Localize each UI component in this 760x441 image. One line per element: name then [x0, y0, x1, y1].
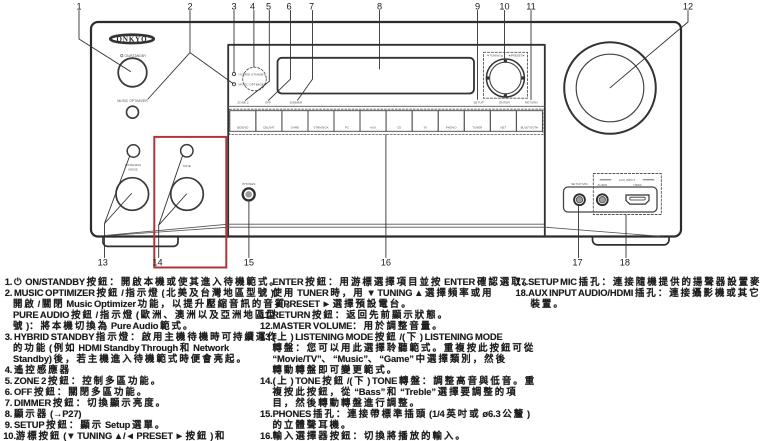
svg-text:SETUP MIC: SETUP MIC [571, 182, 589, 186]
svg-text:HDMI: HDMI [634, 183, 642, 187]
svg-text:11: 11 [526, 1, 536, 11]
svg-text:TUNER: TUNER [472, 126, 482, 130]
svg-text:MUSIC OPTIMIZER: MUSIC OPTIMIZER [117, 99, 148, 103]
svg-text:PC: PC [345, 126, 349, 130]
svg-text:2: 2 [187, 1, 192, 11]
svg-text:BD/DVD: BD/DVD [237, 126, 248, 130]
svg-text:DIMMER: DIMMER [290, 101, 303, 105]
svg-text:PHONES: PHONES [242, 182, 255, 186]
svg-text:5: 5 [266, 1, 271, 11]
svg-text:17: 17 [572, 258, 582, 268]
svg-text:▼TUNING▲: ▼TUNING▲ [487, 54, 504, 58]
svg-text:ENTER: ENTER [499, 101, 510, 105]
svg-text:7: 7 [309, 1, 314, 11]
svg-text:GAME: GAME [291, 126, 300, 130]
svg-text:12: 12 [683, 1, 693, 11]
svg-text:14: 14 [152, 258, 162, 268]
svg-text:MODE: MODE [128, 167, 137, 171]
svg-text:13: 13 [98, 258, 108, 268]
svg-text:BLUETOOTH: BLUETOOTH [521, 126, 539, 130]
svg-text:ONKYO: ONKYO [117, 35, 148, 43]
svg-text:1: 1 [76, 1, 81, 11]
svg-text:STRM BOX: STRM BOX [313, 126, 328, 130]
svg-text:8: 8 [377, 1, 382, 11]
svg-text:ZONE 2: ZONE 2 [237, 101, 248, 105]
svg-text:HYBRID STANDBY: HYBRID STANDBY [239, 73, 266, 77]
svg-text:6: 6 [286, 1, 291, 11]
svg-text:16: 16 [381, 258, 391, 268]
svg-text:CBL/SAT: CBL/SAT [263, 126, 275, 130]
svg-text:AUX INPUT: AUX INPUT [619, 178, 636, 182]
svg-text:TONE: TONE [182, 164, 191, 168]
svg-text:15: 15 [244, 258, 254, 268]
svg-text:OFF: OFF [265, 101, 271, 105]
svg-text:NET: NET [500, 126, 506, 130]
svg-text:CD: CD [397, 126, 401, 130]
svg-text:PHONO: PHONO [446, 126, 457, 130]
svg-text:TV: TV [423, 126, 427, 130]
svg-text:RETURN: RETURN [525, 101, 538, 105]
svg-text:AUX: AUX [370, 126, 376, 130]
svg-text:18: 18 [620, 258, 630, 268]
svg-text:10: 10 [499, 1, 509, 11]
svg-text:AUDIO: AUDIO [597, 183, 607, 187]
svg-text:4: 4 [250, 1, 255, 11]
svg-text:◄PRESET►: ◄PRESET► [508, 54, 525, 58]
svg-text:ON/STANDBY: ON/STANDBY [125, 54, 148, 58]
svg-text:3: 3 [231, 1, 236, 11]
svg-text:SETUP: SETUP [473, 101, 483, 105]
svg-text:9: 9 [475, 1, 480, 11]
